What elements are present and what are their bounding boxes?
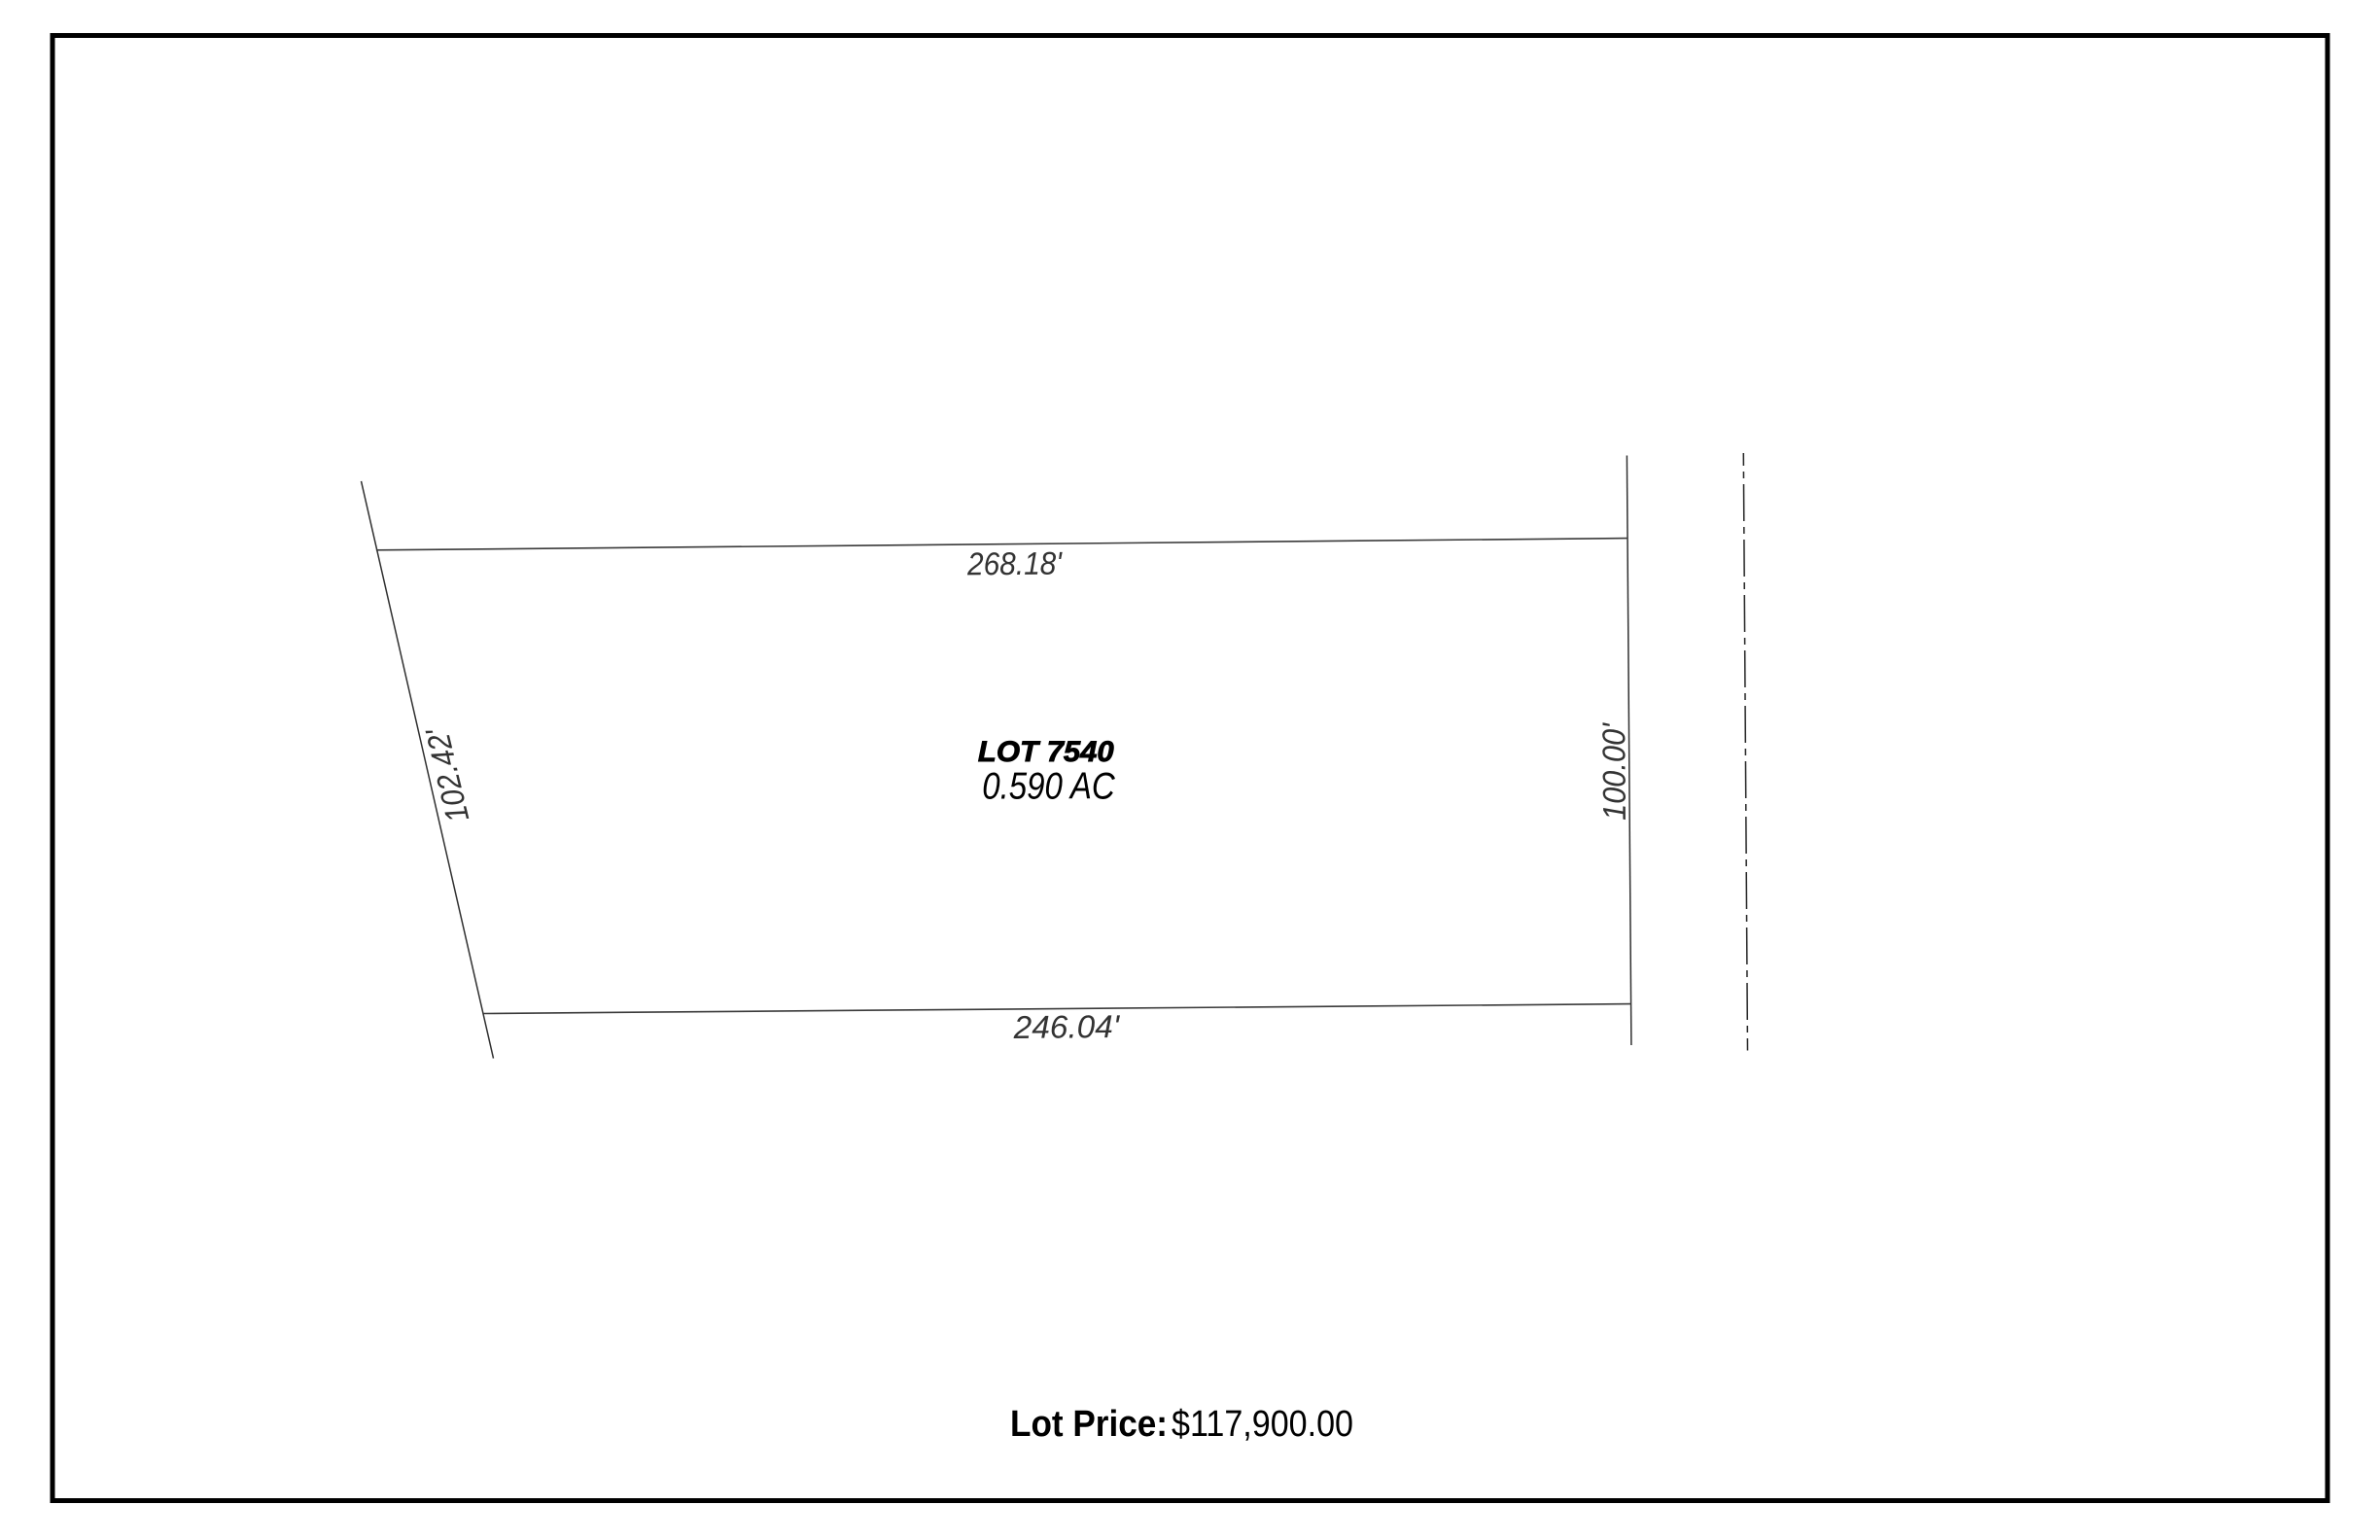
svg-text:100.00': 100.00'	[1595, 721, 1632, 821]
svg-text:268.18': 268.18'	[966, 545, 1064, 582]
svg-text:LOT 7540: LOT 7540	[978, 736, 1114, 768]
svg-text:0.590 AC: 0.590 AC	[982, 765, 1115, 807]
svg-text:Lot Price:: Lot Price:	[1010, 1404, 1168, 1445]
svg-text:246.04': 246.04'	[1012, 1008, 1121, 1045]
svg-text:$117,900.00: $117,900.00	[1172, 1404, 1353, 1445]
